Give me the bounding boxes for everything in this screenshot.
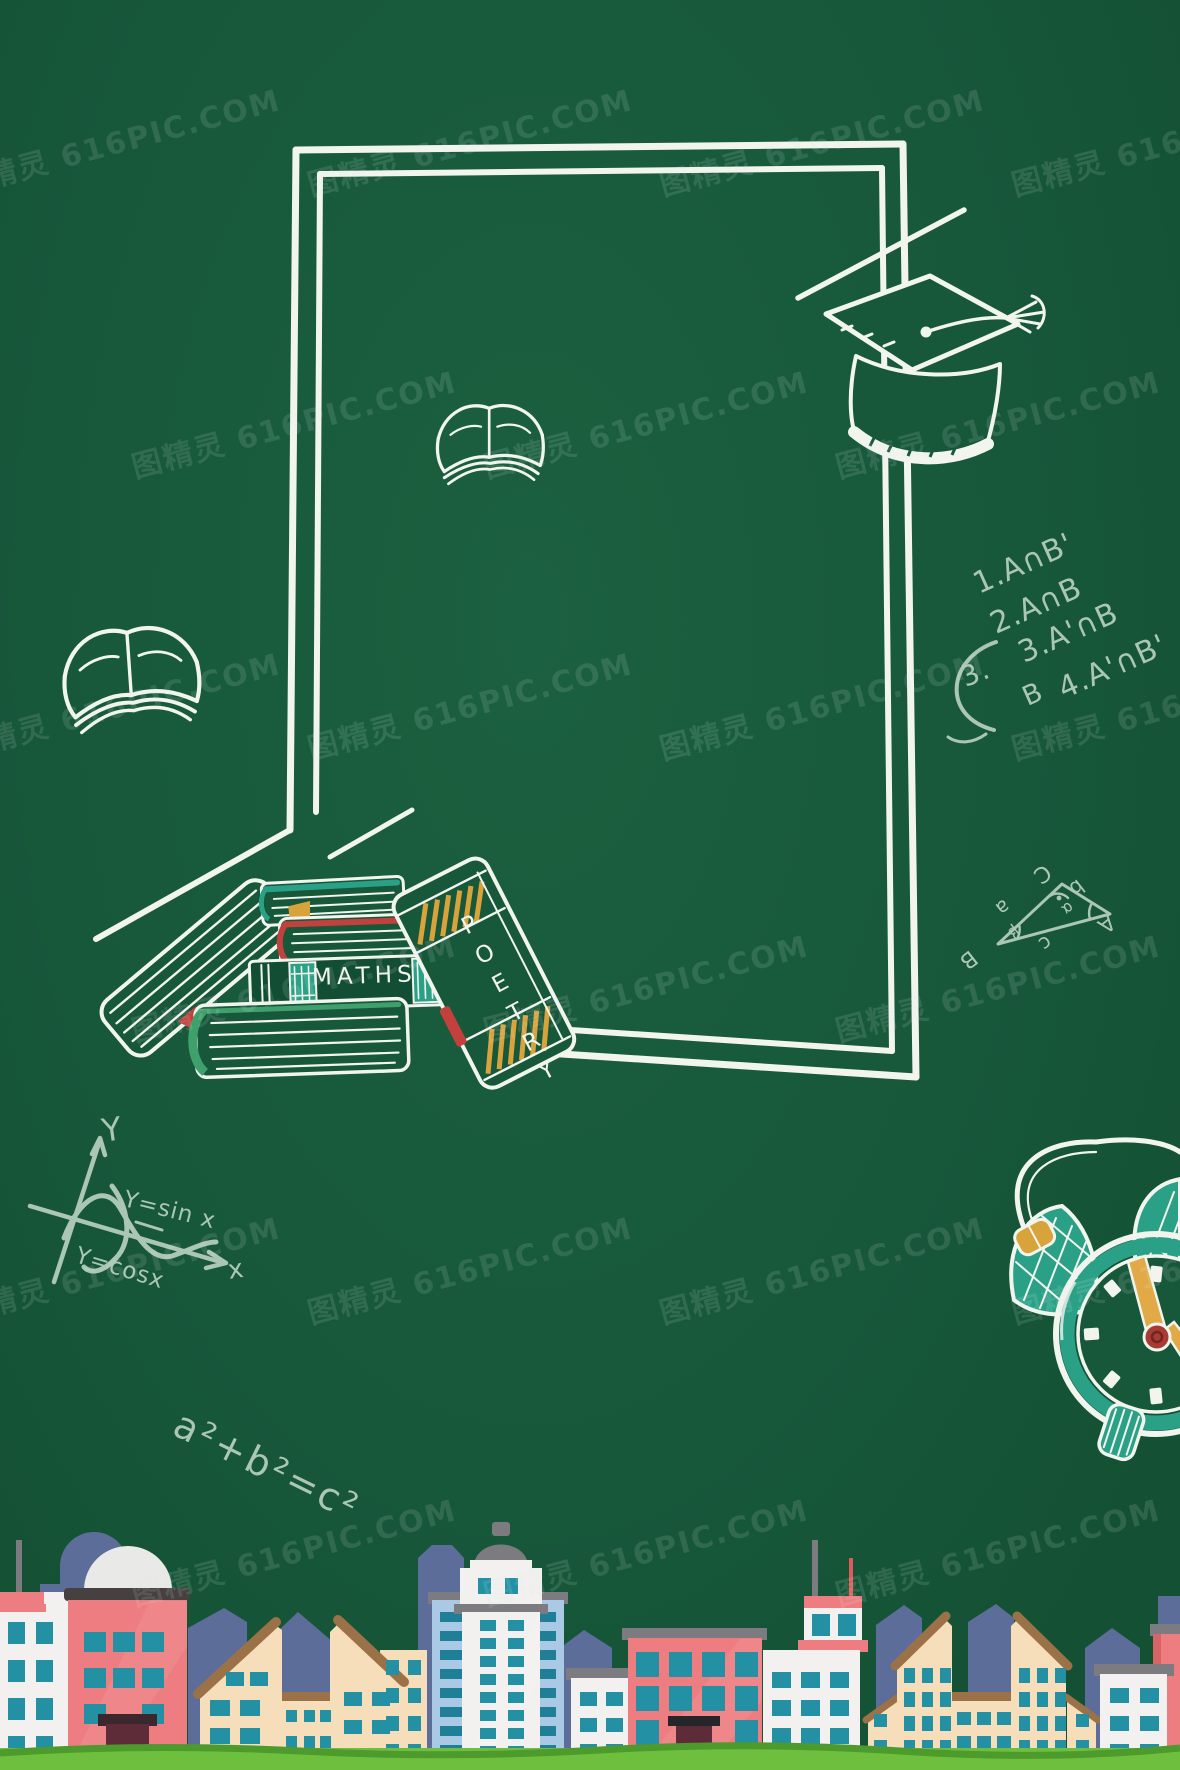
maths-book-title: MATHS	[312, 961, 417, 991]
graduation-cap-icon	[826, 276, 1044, 459]
graph-y-axis-label: Y	[99, 1109, 125, 1149]
building-white-cabin	[763, 1540, 868, 1770]
green-book	[191, 998, 409, 1077]
building-white-left	[0, 1592, 68, 1770]
alarm-clock-icon	[1011, 1140, 1180, 1462]
chalkboard-poster: 1.A∩B' 2.A∩B 3.A'∩B 4.A'∩B' B 3. a²+b²=c…	[0, 0, 1180, 1770]
poster-artwork	[0, 0, 1180, 1770]
city-skyline	[0, 1522, 1180, 1770]
